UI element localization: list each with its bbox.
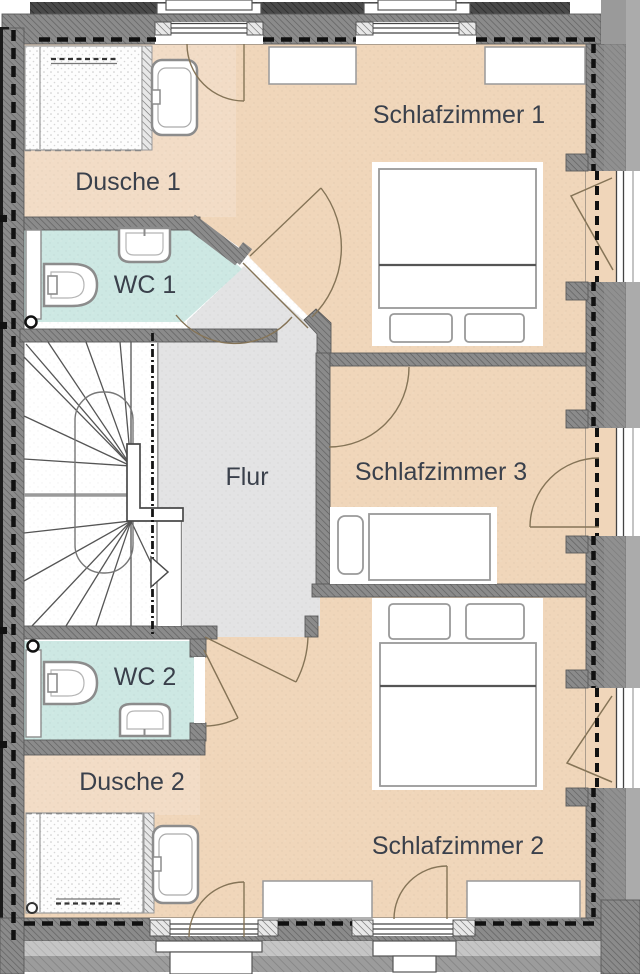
svg-text:WC 1: WC 1 [114,271,177,299]
svg-text:Schlafzimmer 3: Schlafzimmer 3 [355,458,527,486]
svg-text:Dusche 1: Dusche 1 [75,168,181,196]
svg-text:Dusche 2: Dusche 2 [79,768,185,796]
svg-text:Schlafzimmer 2: Schlafzimmer 2 [372,832,544,860]
svg-text:WC 2: WC 2 [114,663,177,691]
svg-text:Schlafzimmer 1: Schlafzimmer 1 [373,101,545,129]
svg-text:Flur: Flur [225,463,268,491]
